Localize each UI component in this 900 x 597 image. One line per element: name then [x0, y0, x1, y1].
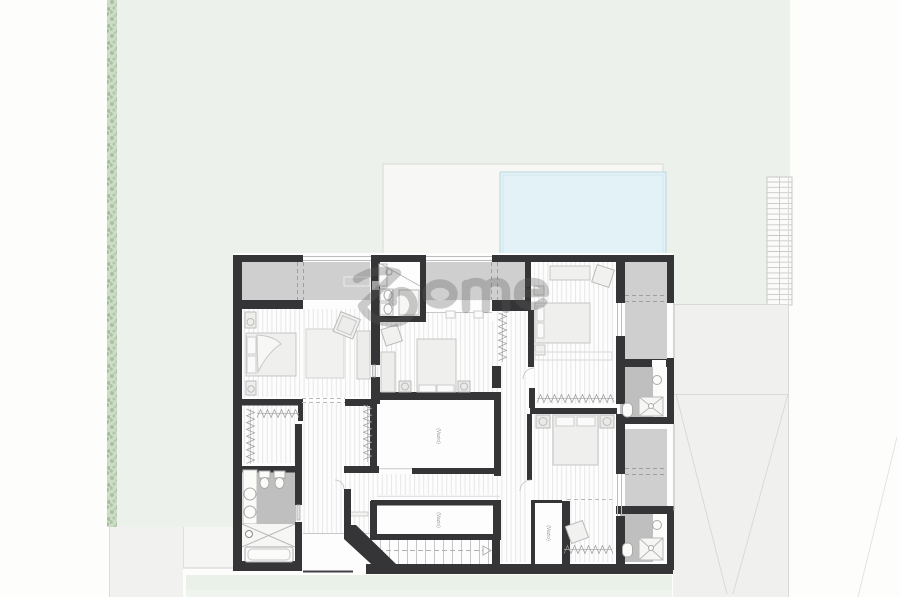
- svg-text:(Vazio): (Vazio): [435, 428, 441, 444]
- svg-text:(Vazio): (Vazio): [545, 525, 551, 541]
- svg-text:(Vazio): (Vazio): [435, 512, 441, 528]
